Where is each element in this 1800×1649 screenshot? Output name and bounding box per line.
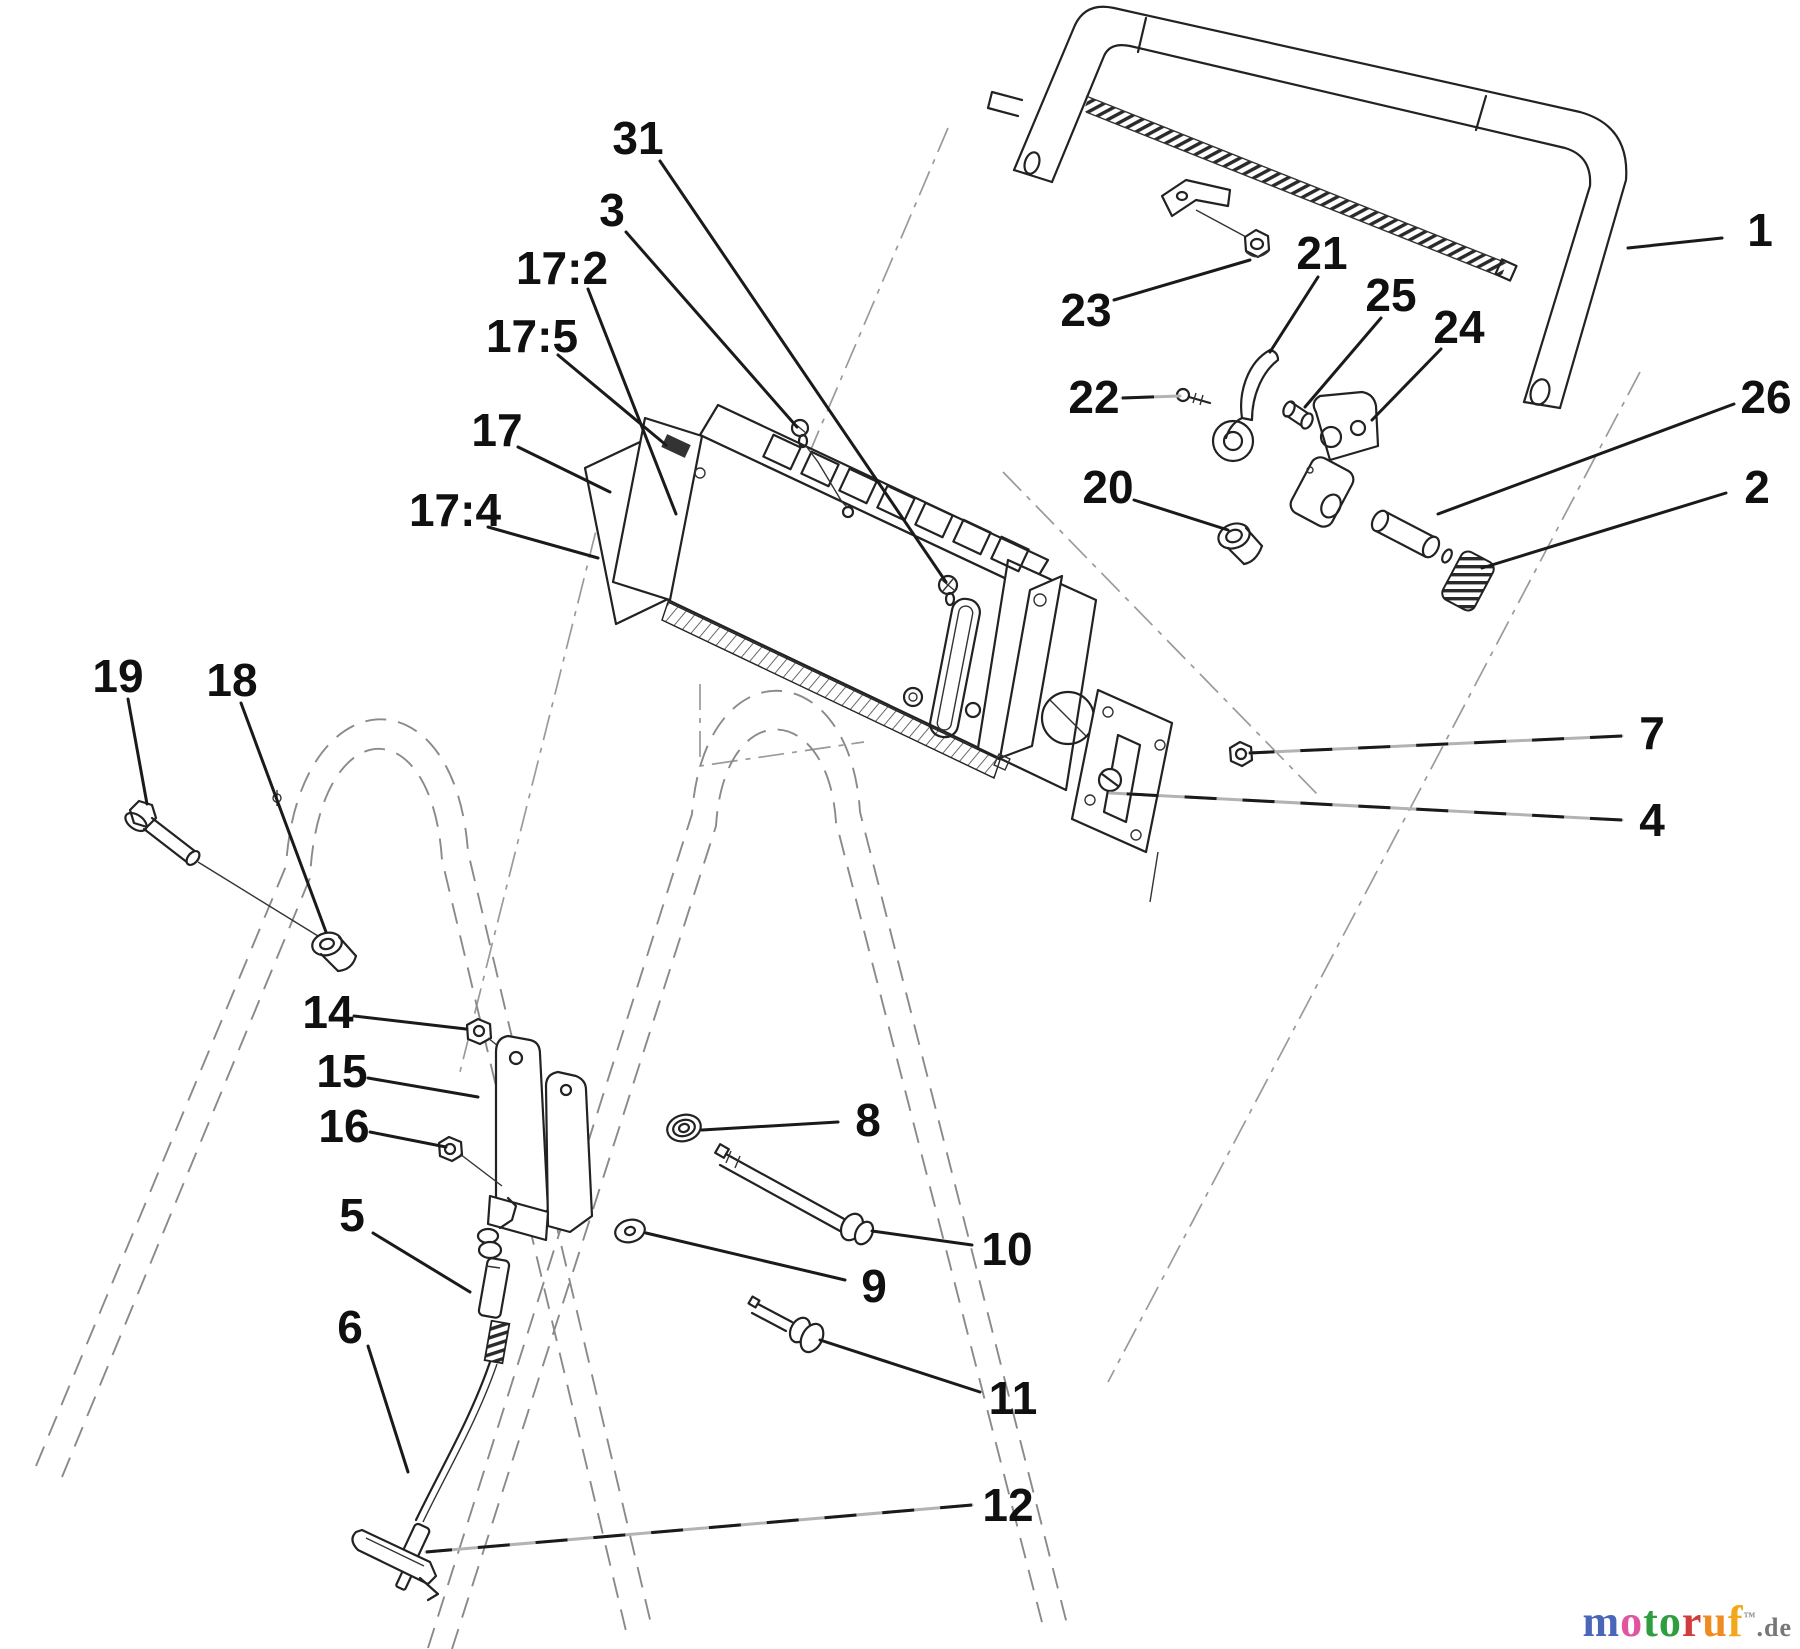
callout-18: 18 (206, 654, 326, 932)
callout-label-22: 22 (1068, 371, 1119, 423)
callout-20: 20 (1082, 461, 1228, 530)
callout-label-15: 15 (316, 1045, 367, 1097)
callout-label-26: 26 (1740, 371, 1791, 423)
upper-handle-part-1 (988, 7, 1626, 408)
callout-label-4: 4 (1639, 794, 1665, 846)
screw-part-22 (1177, 389, 1210, 405)
callout-label-8: 8 (855, 1094, 881, 1146)
callouts-layer: 1234567891011121415161717:217:417:518192… (92, 112, 1791, 1552)
callout-16: 16 (318, 1100, 446, 1152)
callout-label-2: 2 (1744, 461, 1770, 513)
callout-25: 25 (1305, 269, 1417, 407)
callout-label-31: 31 (612, 112, 663, 164)
callout-26: 26 (1438, 371, 1792, 514)
spring-part-2 (1439, 549, 1496, 614)
handle-clamp-parts (1177, 350, 1497, 613)
watermark-tm-mark: ™ (1744, 1609, 1757, 1623)
lever-part-21 (1213, 350, 1278, 461)
pin-part-25 (1281, 400, 1315, 431)
handle-stub (988, 92, 1022, 116)
callout-15: 15 (316, 1045, 478, 1097)
watermark-logo: motoruf™.de (1583, 1596, 1792, 1647)
callout-4: 4 (1110, 793, 1665, 846)
callout-label-17:5: 17:5 (486, 310, 578, 362)
callout-12: 12 (426, 1479, 1034, 1552)
callout-label-7: 7 (1639, 707, 1665, 759)
watermark-letter: u (1702, 1597, 1727, 1646)
callout-21: 21 (1270, 227, 1348, 352)
callout-7: 7 (1249, 707, 1665, 759)
callout-label-23: 23 (1060, 284, 1111, 336)
callout-8: 8 (702, 1094, 881, 1146)
callout-label-3: 3 (599, 184, 625, 236)
callout-label-25: 25 (1365, 269, 1416, 321)
callout-17:4: 17:4 (409, 484, 598, 558)
bushing-part-20 (1215, 519, 1262, 564)
callout-label-5: 5 (339, 1189, 365, 1241)
watermark-letter: r (1682, 1597, 1703, 1646)
callout-19: 19 (92, 650, 147, 804)
callout-2: 2 (1482, 461, 1770, 568)
callout-label-12: 12 (982, 1479, 1033, 1531)
watermark-suffix: .de (1757, 1613, 1793, 1642)
callout-label-9: 9 (861, 1260, 887, 1312)
pin-part-26 (1369, 508, 1454, 564)
callout-23: 23 (1060, 260, 1250, 336)
callout-10: 10 (872, 1223, 1033, 1275)
callout-label-17:2: 17:2 (516, 242, 608, 294)
exploded-parts-diagram: 1234567891011121415161717:217:417:518192… (0, 0, 1800, 1649)
watermark-letter: m (1583, 1597, 1621, 1646)
nut-23-part (1245, 230, 1269, 257)
washer-part-9 (613, 1216, 648, 1245)
callout-11: 11 (820, 1340, 1037, 1424)
callout-6: 6 (337, 1301, 408, 1472)
callout-label-11: 11 (989, 1372, 1038, 1424)
callout-label-1: 1 (1747, 204, 1773, 256)
callout-label-20: 20 (1082, 461, 1133, 513)
bracket-part-24 (1287, 392, 1378, 530)
callout-14: 14 (302, 986, 466, 1038)
callout-label-16: 16 (318, 1100, 369, 1152)
watermark-letter: t (1643, 1597, 1659, 1646)
bracket-and-nut-23 (1162, 180, 1269, 257)
callout-label-21: 21 (1296, 227, 1347, 279)
bolt-part-10 (715, 1144, 877, 1247)
watermark-letter: f (1728, 1597, 1744, 1646)
callout-label-24: 24 (1433, 301, 1485, 353)
callout-label-17:4: 17:4 (409, 484, 501, 536)
callout-label-17: 17 (471, 404, 522, 456)
bracket-part-15 (488, 1036, 592, 1240)
callout-label-14: 14 (302, 986, 354, 1038)
watermark-letter: o (1620, 1597, 1643, 1646)
callout-22: 22 (1068, 371, 1180, 423)
callout-label-19: 19 (92, 650, 143, 702)
callout-9: 9 (646, 1233, 887, 1312)
diagram-page: 1234567891011121415161717:217:417:518192… (0, 0, 1800, 1649)
control-panel-part-17 (585, 405, 1096, 790)
callout-label-6: 6 (337, 1301, 363, 1353)
callout-5: 5 (339, 1189, 470, 1292)
callout-label-18: 18 (206, 654, 257, 706)
washer-part-8 (664, 1111, 704, 1145)
callout-1: 1 (1628, 204, 1773, 256)
nut-part-16 (439, 1137, 502, 1186)
watermark-letter: o (1659, 1597, 1682, 1646)
bolt-part-11 (749, 1297, 828, 1356)
bolt-part-19 (122, 801, 318, 936)
callout-label-10: 10 (981, 1223, 1032, 1275)
